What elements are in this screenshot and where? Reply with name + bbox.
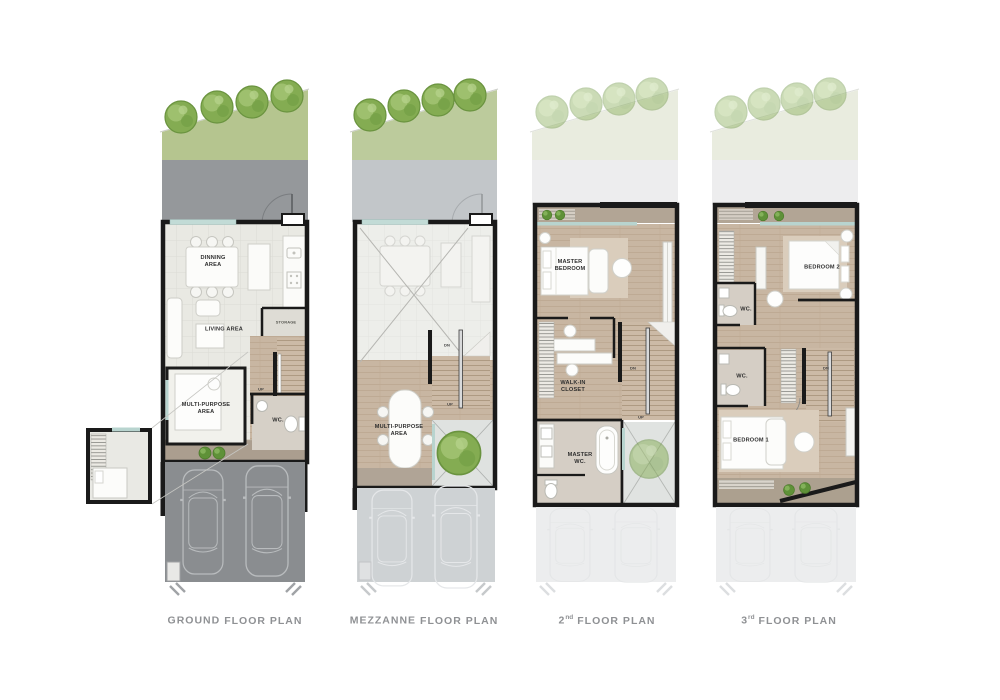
driveway-upper-ghost	[532, 160, 678, 205]
courtyard-tree-icon	[437, 431, 480, 474]
chair	[191, 237, 202, 248]
stool	[566, 364, 578, 376]
basin-icon	[541, 428, 552, 439]
direction-arrow-icon	[837, 583, 852, 595]
plant-icon	[800, 483, 811, 494]
plant-icon	[758, 211, 768, 221]
plan-title-mezzanine-floor: MEZZANNEFLOOR PLAN	[350, 614, 499, 627]
room-label-bedroom-2: BEDROOM 2	[804, 265, 840, 272]
toilet-icon	[726, 385, 740, 396]
window-glass	[537, 222, 637, 226]
plant-icon	[542, 210, 552, 220]
round-table	[794, 432, 814, 452]
room-label-multi-purpose: MULTI-PURPOSE AREA	[375, 424, 424, 438]
sofa	[766, 419, 786, 465]
chair	[423, 407, 434, 418]
direction-arrow-icon	[540, 583, 555, 595]
tree-icon	[165, 101, 197, 133]
basin-icon	[257, 401, 268, 412]
plan-title-third-floor: 3rdFLOOR PLAN	[741, 614, 837, 627]
basin-icon	[719, 288, 729, 298]
basin-icon	[541, 446, 552, 457]
direction-arrow-icon	[720, 583, 735, 595]
tree-icon	[422, 84, 454, 116]
plan-title-ground-floor: GROUNDFLOOR PLAN	[168, 614, 303, 627]
closet-slats	[719, 231, 734, 283]
chair	[191, 287, 202, 298]
stool	[841, 230, 853, 242]
utility-box	[167, 562, 180, 581]
toilet-icon	[545, 484, 557, 499]
closet-slats	[781, 349, 796, 403]
basin-icon	[719, 354, 729, 364]
floor-plan-sheet: DINNING AREA LIVING AREA STORAGE MULTI-P…	[0, 0, 1000, 700]
stair-wall	[802, 348, 806, 404]
room-label-bedroom-1: BEDROOM 1	[733, 438, 769, 445]
tree-icon	[354, 99, 386, 131]
pillow	[841, 266, 849, 282]
stair-label-dn: DN	[823, 366, 829, 371]
stair-label-up: UP	[638, 415, 644, 420]
room-label-living-area: LIVING AREA	[205, 327, 243, 334]
chair	[207, 287, 218, 298]
round-table	[767, 291, 783, 307]
stair-handrail	[459, 330, 463, 408]
stair-label-dn: DN	[444, 343, 450, 348]
plant-icon	[555, 210, 565, 220]
sofa	[589, 249, 608, 293]
plant-icon	[213, 447, 225, 459]
pillow	[723, 421, 731, 438]
stair-wall	[273, 352, 277, 396]
stair-wall	[618, 322, 622, 382]
entry-terrace	[357, 468, 432, 486]
direction-arrow-icon	[361, 583, 376, 595]
tree-icon	[271, 80, 303, 112]
stool	[208, 378, 220, 390]
stool	[564, 325, 576, 337]
island-counter	[248, 244, 270, 290]
window-glass	[432, 424, 435, 480]
stair-handrail	[646, 328, 650, 414]
direction-arrow-icon	[657, 583, 672, 595]
sofa	[167, 298, 182, 358]
window-glass	[112, 428, 140, 432]
stair-label-dn: DN	[630, 366, 636, 371]
tree-icon	[236, 86, 268, 118]
window-glass	[362, 220, 428, 225]
toilet-tank	[299, 417, 305, 431]
toilet-icon	[723, 306, 737, 317]
stair-label-up: UP	[258, 387, 264, 392]
direction-arrow-icon	[286, 583, 301, 595]
driveway-upper-ghost	[712, 160, 858, 205]
driveway-upper-faded	[352, 160, 497, 222]
pillow	[95, 471, 103, 483]
utility-box	[359, 562, 371, 580]
floor-plans-graphic	[0, 0, 1000, 700]
chair	[378, 407, 389, 418]
pillow	[543, 272, 551, 289]
plan-title-second-floor: 2ndFLOOR PLAN	[558, 614, 655, 627]
tree-icon	[201, 91, 233, 123]
toilet-tank	[721, 384, 726, 395]
room-label-wc-lower: WC.	[736, 374, 747, 381]
entry-box	[282, 214, 304, 225]
wardrobe	[846, 408, 855, 456]
entry-box	[470, 214, 492, 225]
mezzanine-floor-plan	[350, 79, 498, 595]
closet-counter	[557, 353, 612, 364]
direction-arrow-icon	[170, 583, 185, 595]
garage-driveway	[165, 462, 305, 582]
stair-handrail	[828, 352, 832, 416]
toilet-icon	[285, 416, 298, 432]
stool	[840, 288, 852, 300]
driveway-upper	[162, 160, 308, 222]
window-glass	[622, 428, 625, 470]
chair	[423, 435, 434, 446]
direction-arrow-icon	[476, 583, 491, 595]
room-label-master-wc: MASTER WC.	[568, 452, 593, 466]
window-glass	[760, 222, 855, 226]
second-floor-plan	[530, 78, 679, 595]
chair	[207, 237, 218, 248]
plant-icon	[774, 211, 784, 221]
pillow	[543, 251, 551, 268]
stair-wall	[428, 330, 432, 384]
room-label-walk-in-closet: WALK-IN CLOSET	[560, 380, 585, 394]
stair-handrail	[278, 354, 281, 394]
closet-slats	[539, 322, 554, 398]
window-glass	[170, 220, 236, 225]
room-label-dinning-area: DINNING AREA	[200, 255, 225, 269]
driveway-ghost	[716, 507, 856, 582]
courtyard-tree-icon	[630, 440, 668, 478]
tree-icon	[454, 79, 486, 111]
pillow	[841, 246, 849, 262]
round-table	[613, 259, 632, 278]
stool	[540, 233, 551, 244]
room-label-multi-purpose: MULTI-PURPOSE AREA	[182, 402, 231, 416]
third-floor-plan	[710, 78, 859, 595]
room-label-wc-upper: WC.	[740, 307, 751, 314]
balcony-slats	[719, 480, 774, 489]
pillow	[723, 443, 731, 460]
wardrobe	[756, 247, 766, 289]
plant-icon	[784, 485, 795, 496]
room-label-master-bedroom: MASTER BEDROOM	[555, 259, 586, 273]
tree-icon	[388, 90, 420, 122]
room-label-wc: WC.	[272, 418, 283, 425]
plant-icon	[199, 447, 211, 459]
balcony-slats	[719, 209, 753, 220]
driveway-ghost	[536, 507, 676, 582]
stair-label-up: UP	[447, 402, 453, 407]
armchair	[196, 300, 220, 316]
ground-floor-plan	[88, 80, 309, 595]
window-glass	[166, 380, 169, 420]
chair	[223, 237, 234, 248]
chair	[223, 287, 234, 298]
room-label-storage: STORAGE	[276, 320, 296, 325]
